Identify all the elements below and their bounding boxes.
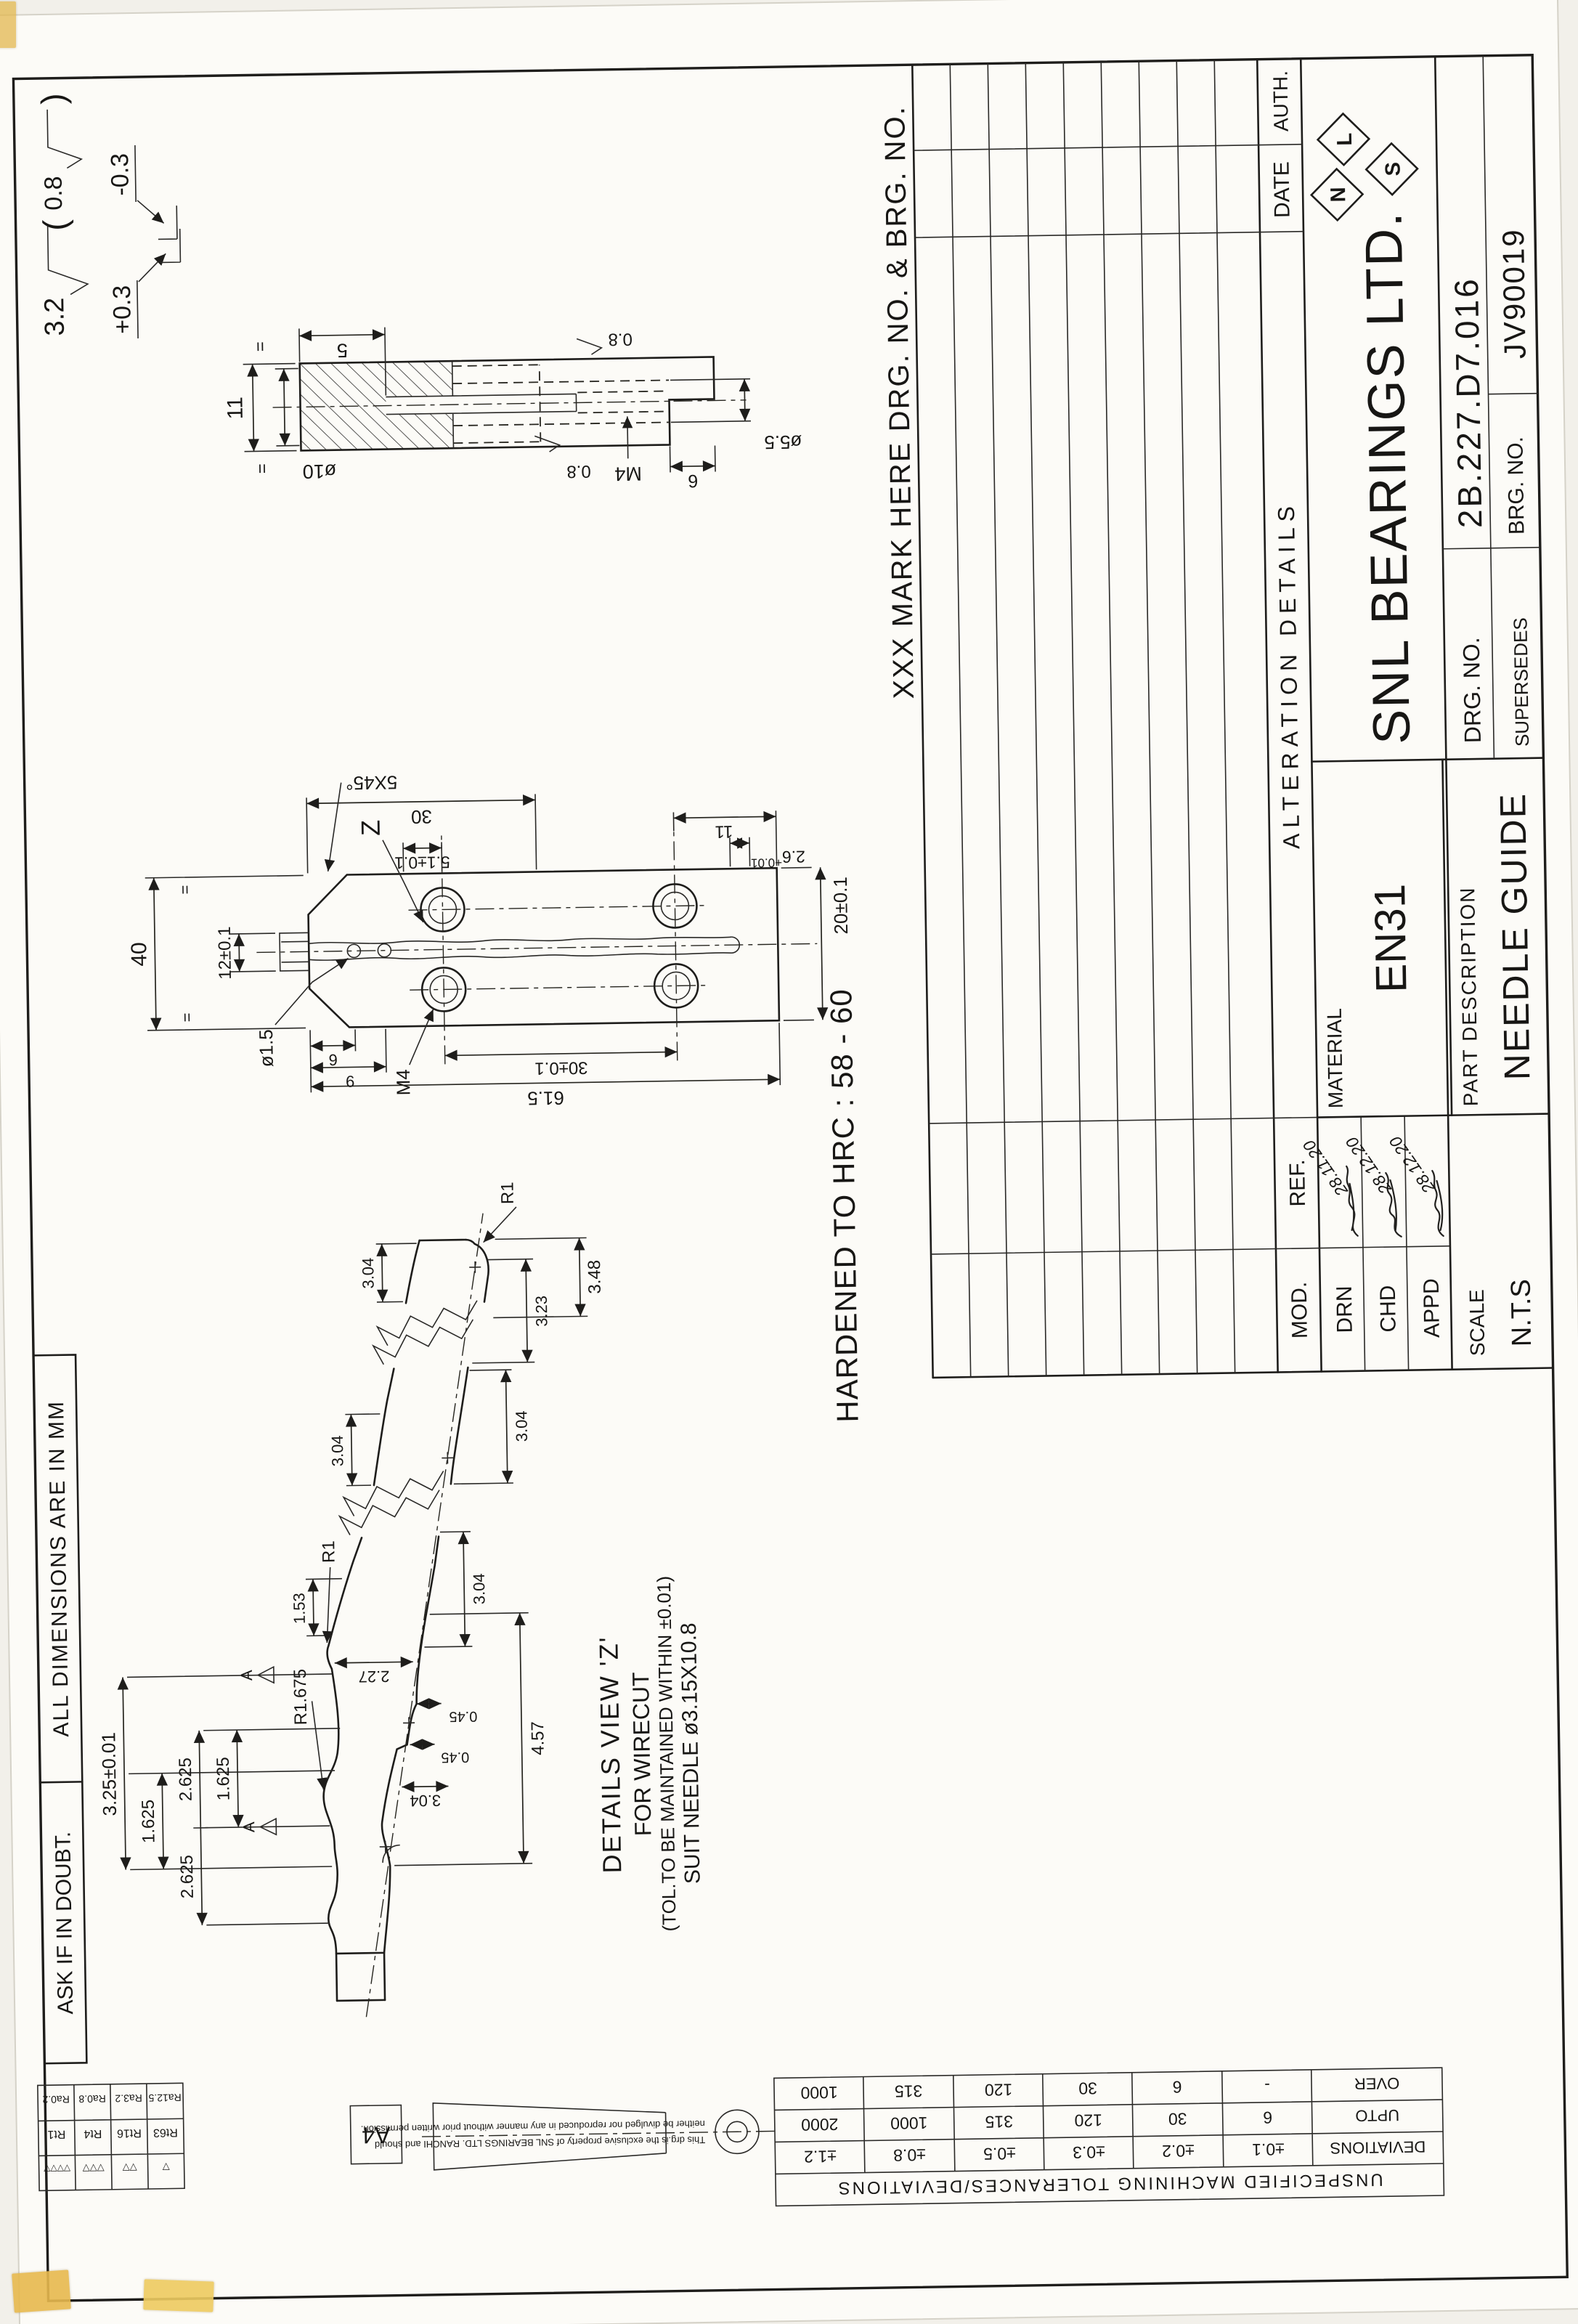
detail-title: DETAILS VIEW 'Z': [593, 1636, 627, 1874]
roughness-symbol: ▽: [163, 2162, 170, 2173]
part-desc-label: PART DESCRIPTION: [1456, 886, 1482, 1106]
dim-3-48: 3.48: [585, 1260, 605, 1294]
dim-30-tol: 30±0.1: [534, 1057, 588, 1078]
dim-1-625: 1.625: [139, 1800, 159, 1843]
dim-0-45: 0.45: [441, 1749, 469, 1766]
dim-2-625: 2.625: [176, 1758, 196, 1801]
dim-3-25: 3.25±0.01: [97, 1732, 121, 1816]
header-mod: MOD.: [1288, 1282, 1312, 1339]
dim-3-04: 3.04: [410, 1792, 441, 1811]
ra-value: Ra3.2: [115, 2092, 142, 2105]
equal-mark: =: [253, 463, 272, 474]
rt-value: Rt1: [47, 2128, 65, 2140]
dim-m4-section: M4: [614, 463, 642, 485]
scanned-drawing-page: ASK IF IN DOUBT. ALL DIMENSIONS ARE IN M…: [0, 0, 1578, 2324]
over-value: 1000: [800, 2083, 838, 2102]
rt-value: Rt63: [153, 2126, 178, 2139]
dim-3-04: 3.04: [359, 1258, 378, 1289]
company-name: SNL BEARINGS LTD.: [1355, 211, 1422, 744]
scale-label: SCALE: [1465, 1289, 1489, 1356]
dim-6-section: 6: [688, 471, 698, 491]
upto-value: 30: [1168, 2110, 1187, 2129]
dim-20: 20±0.1: [829, 877, 852, 935]
dim-2-625: 2.625: [177, 1855, 198, 1898]
deviation-value: ±0.1: [1252, 2140, 1285, 2159]
svg-text:S: S: [1381, 162, 1404, 176]
equal-mark: =: [176, 885, 194, 894]
edge-minus: -0.3: [106, 153, 134, 196]
supersedes-label: SUPERSEDES: [1509, 617, 1533, 747]
equal-mark: =: [251, 341, 270, 352]
ra-value: Ra12.5: [148, 2092, 182, 2104]
ask-note: ASK IF IN DOUBT.: [51, 1832, 78, 2015]
dim-dia10: ø10: [302, 460, 336, 483]
finish-0-8: 0.8: [566, 461, 591, 482]
header-alteration: ALTERATION DETAILS: [1273, 500, 1305, 850]
upto-value: 315: [985, 2112, 1013, 2132]
roughness-symbol: ▽▽▽▽: [43, 2163, 70, 2174]
rt-value: Rt4: [84, 2127, 102, 2140]
tape-mark: [0, 1, 16, 48]
over-value: 315: [895, 2081, 923, 2101]
dim-dia5-5: ø5.5: [764, 431, 802, 454]
deviation-value: ±1.2: [804, 2147, 837, 2166]
detail-sub1: FOR WIRECUT: [627, 1672, 656, 1836]
dim-1-53: 1.53: [290, 1593, 309, 1624]
dim-61-5: 61.5: [527, 1087, 564, 1110]
svg-text:A: A: [237, 1670, 256, 1681]
rt-value: Rt16: [117, 2126, 142, 2140]
part-desc-value: NEEDLE GUIDE: [1492, 792, 1537, 1081]
sig-role: DRN: [1333, 1285, 1357, 1333]
detail-sub3: SUIT NEEDLE ø3.15X10.8: [677, 1622, 705, 1884]
dim-1-625: 1.625: [213, 1757, 234, 1800]
dim-dia1-5: ø1.5: [255, 1029, 277, 1067]
roughness-symbol: ▽▽: [123, 2162, 137, 2173]
svg-text:A: A: [240, 1821, 258, 1832]
drawing-svg: ASK IF IN DOUBT. ALL DIMENSIONS ARE IN M…: [0, 0, 1578, 2324]
ra-value: Ra0.2: [42, 2094, 70, 2106]
dim-5-1: 5.1±0.1: [394, 853, 450, 872]
deviation-value: ±0.3: [1073, 2142, 1105, 2162]
dim-5: 5: [337, 339, 349, 361]
header-ref: REF.: [1285, 1159, 1310, 1207]
upto-value: 2000: [801, 2115, 839, 2134]
dim-3-04: 3.04: [470, 1573, 489, 1604]
tape-mark: [143, 2279, 213, 2312]
dim-12: 12±0.1: [215, 926, 235, 980]
drawing-sheet: ASK IF IN DOUBT. ALL DIMENSIONS ARE IN M…: [0, 0, 1578, 2324]
sig-role: APPD: [1420, 1278, 1444, 1338]
dim-30: 30: [411, 806, 432, 828]
dim-2-27: 2.27: [358, 1667, 389, 1686]
material-value: EN31: [1365, 883, 1415, 993]
drg-label: DRG. NO.: [1458, 637, 1486, 743]
over-value: -: [1264, 2076, 1270, 2095]
paren-open: (: [36, 219, 73, 231]
equal-mark: =: [178, 1012, 196, 1022]
dim-0-45: 0.45: [449, 1708, 477, 1725]
row-label: UPTO: [1355, 2106, 1399, 2125]
hardness-note: HARDENED TO HRC : 58 - 60: [823, 988, 864, 1423]
row-label: OVER: [1354, 2074, 1400, 2093]
svg-text:L: L: [1333, 133, 1357, 146]
over-value: 30: [1078, 2079, 1097, 2097]
ra-value: Ra0.8: [78, 2093, 106, 2105]
dim-3-04: 3.04: [512, 1410, 531, 1442]
brg-number: JV90019: [1496, 228, 1532, 359]
upto-value: 1000: [890, 2113, 928, 2133]
finish-0-8: 0.8: [608, 329, 633, 349]
svg-text:N: N: [1327, 187, 1350, 202]
roughness-symbol: ▽▽▽: [83, 2163, 105, 2174]
dim-4-57: 4.57: [528, 1721, 548, 1755]
view-z-label: Z: [356, 820, 386, 837]
dim-11-section: 11: [223, 397, 247, 420]
dim-r1: R1: [319, 1540, 338, 1563]
header-auth: AUTH.: [1269, 70, 1292, 131]
upto-value: 120: [1074, 2110, 1102, 2130]
over-value: 120: [985, 2080, 1013, 2100]
dim-40: 40: [127, 942, 152, 967]
edge-plus: +0.3: [108, 285, 137, 334]
drg-number: 2B.227.D7.016: [1447, 277, 1489, 529]
sig-role: CHD: [1376, 1285, 1401, 1333]
dim-3-23: 3.23: [532, 1296, 551, 1327]
paren-close: ): [34, 93, 72, 105]
header-date: DATE: [1269, 161, 1294, 218]
tape-mark: [12, 2270, 71, 2312]
deviation-value: ±0.5: [983, 2144, 1016, 2163]
paper-edge: [0, 0, 1578, 2324]
dim-chamfer: 5X45°: [346, 771, 398, 794]
brg-label: BRG. NO.: [1503, 436, 1529, 535]
finish-general: 3.2: [39, 297, 70, 336]
upto-value: 6: [1263, 2108, 1272, 2127]
dim-m4-plan: M4: [392, 1069, 415, 1096]
scale-value: N.T.S: [1506, 1279, 1537, 1347]
finish-alt: 0.8: [40, 176, 68, 211]
dim-3-04: 3.04: [328, 1435, 347, 1466]
dim-11-plan: 11: [715, 821, 733, 841]
dim-6-plan: 6: [328, 1051, 338, 1069]
row-label: DEVIATIONS: [1330, 2137, 1426, 2157]
material-label: MATERIAL: [1323, 1008, 1347, 1108]
over-value: 6: [1172, 2078, 1182, 2097]
dim-9: 9: [346, 1072, 355, 1090]
deviation-value: ±0.2: [1162, 2141, 1195, 2161]
deviation-value: ±0.8: [893, 2145, 926, 2165]
dim-r1: R1: [497, 1182, 517, 1204]
dim-r1-675: R1.675: [290, 1669, 311, 1726]
